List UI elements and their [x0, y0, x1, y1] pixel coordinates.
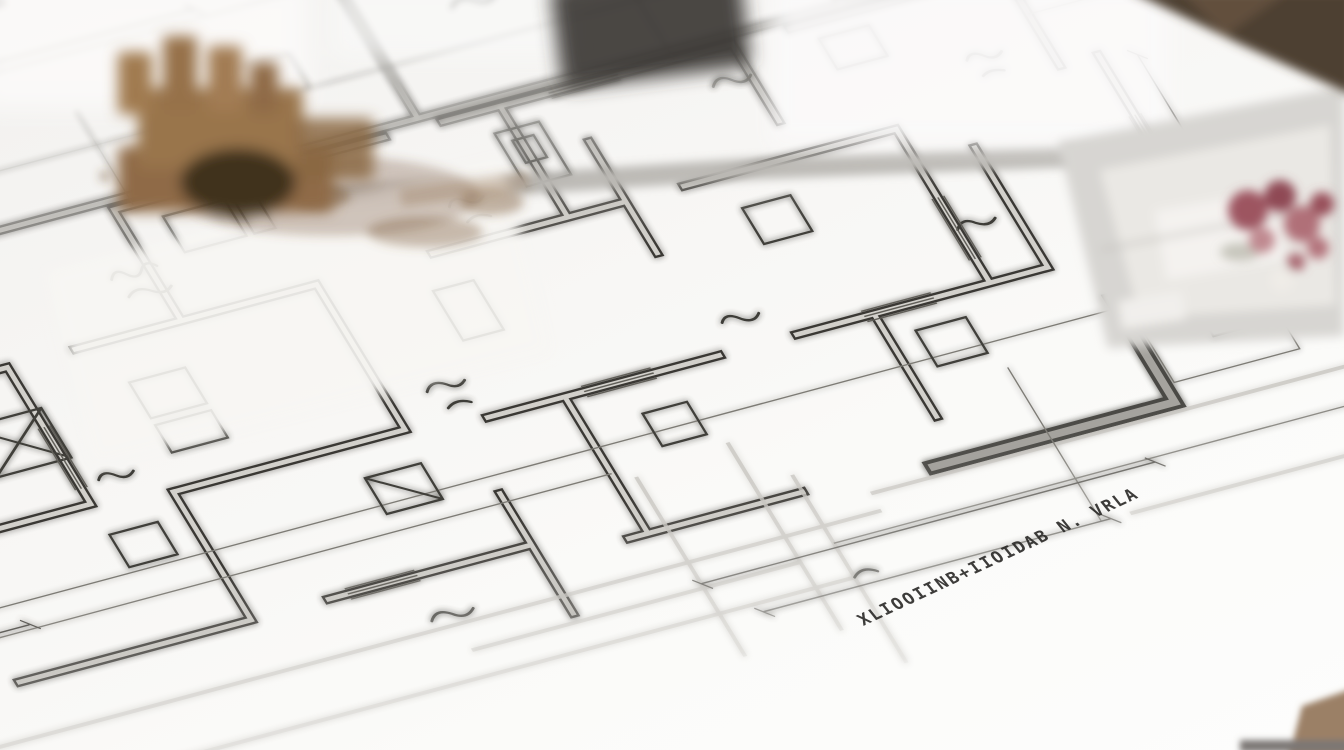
bottom-right-wood-object — [1240, 688, 1344, 750]
dark-object — [550, 0, 751, 89]
photo-floor-plan-scene: XLIOOIINB+IIOIDAB N. VRLA — [0, 0, 1344, 750]
scene-canvas — [0, 0, 1344, 750]
